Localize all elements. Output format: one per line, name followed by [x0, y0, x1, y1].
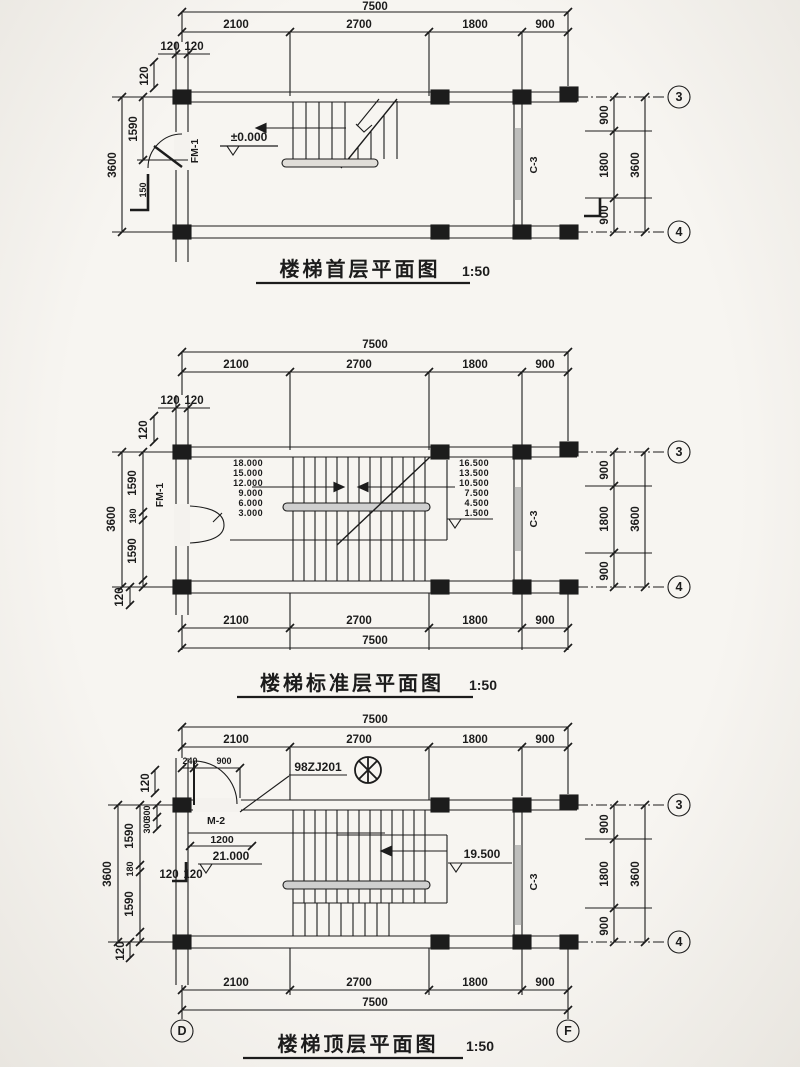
dim-seg: 1800 [462, 19, 488, 31]
stair-curb [282, 159, 378, 167]
dim-seg: 2700 [346, 615, 372, 627]
level-label: 15.000 [233, 468, 263, 478]
dim-180: 180 [128, 508, 138, 523]
dim-r1800: 1800 [599, 152, 611, 178]
first-floor-plan: 7500 2100 2700 1800 900 120 120 120 1590… [107, 1, 690, 283]
level-label: 10.500 [459, 478, 489, 488]
dim-seg: 900 [535, 977, 554, 989]
dim-seg: 900 [535, 19, 554, 31]
drawing-sheet: 7500 2100 2700 1800 900 120 120 120 1590… [0, 0, 800, 1067]
dim-seg: 2700 [346, 977, 372, 989]
dim-seg: 2100 [223, 977, 249, 989]
dim-seg: 2100 [223, 19, 249, 31]
dim-1200: 1200 [210, 834, 234, 846]
dim-r1800: 1800 [599, 506, 611, 532]
dim-r3600: 3600 [630, 861, 642, 887]
level-label: 9.000 [238, 488, 263, 498]
break-line [341, 99, 397, 168]
first-floor-texts: 7500 2100 2700 1800 900 120 120 120 1590… [107, 1, 683, 281]
dim-total-top: 7500 [362, 1, 388, 13]
dim-240: 240 [182, 756, 197, 766]
stair-flights [283, 810, 447, 936]
grid-bubble-d-label: D [177, 1024, 186, 1038]
dim-v120: 120 [138, 420, 150, 439]
standard-floor-plan: 7500 2100 2700 1800 900 120 120 120 1590… [106, 339, 690, 697]
dim-120-bottom: 120 [114, 587, 126, 606]
dim-seg: 1800 [462, 734, 488, 746]
dim-300: 300 [142, 805, 152, 820]
dim-seg: 2700 [346, 734, 372, 746]
elevation-marker [449, 519, 461, 528]
dim-900: 900 [216, 756, 231, 766]
dim-r900: 900 [599, 814, 611, 833]
dim-wall-120: 120 [184, 395, 203, 407]
drawing-title: 楼梯标准层平面图 [260, 671, 444, 695]
level-label: 18.000 [233, 458, 263, 468]
dim-1590: 1590 [124, 891, 136, 917]
dim-r900: 900 [599, 205, 611, 224]
dim-1590: 1590 [124, 823, 136, 849]
level-label: 16.500 [459, 458, 489, 468]
grid-bubble-3-label: 3 [676, 90, 683, 104]
top-floor-plan: 7500 2100 2700 1800 900 240 900 M-2 98ZJ… [102, 714, 690, 1058]
dim-3600: 3600 [106, 506, 118, 532]
door-fm1 [190, 506, 224, 543]
window-c3 [514, 102, 522, 226]
dim-r3600: 3600 [630, 506, 642, 532]
dim-r900: 900 [599, 460, 611, 479]
dim-seg: 2100 [223, 359, 249, 371]
level-label: 3.000 [238, 508, 263, 518]
level-label: 4.500 [464, 498, 489, 508]
elevation-marker [450, 863, 462, 872]
handrail [283, 503, 430, 511]
grid-bubble-f-label: F [564, 1024, 572, 1038]
dim-seg: 1800 [462, 615, 488, 627]
drawing-scale: 1:50 [469, 677, 497, 693]
grid-bubble-3-label: 3 [676, 798, 683, 812]
dim-1590: 1590 [128, 116, 140, 142]
window-c3 [514, 457, 522, 581]
door-label: M-2 [207, 815, 225, 827]
dim-seg: 1800 [462, 359, 488, 371]
window-label: C-3 [528, 156, 540, 173]
detail-index-symbol [355, 757, 381, 783]
dim-seg: 2700 [346, 359, 372, 371]
level-label: 13.500 [459, 468, 489, 478]
dim-seg: 2100 [223, 615, 249, 627]
dim-3600: 3600 [107, 152, 119, 178]
dim-1590: 1590 [127, 538, 139, 564]
dim-wall-120: 120 [184, 41, 203, 53]
dim-seg: 900 [535, 359, 554, 371]
dim-r3600: 3600 [630, 152, 642, 178]
dim-v120: 120 [139, 66, 151, 85]
dim-total-bottom: 7500 [362, 635, 388, 647]
elevation-marker [227, 146, 239, 155]
handrail [283, 881, 430, 889]
elevation-label: 21.000 [213, 849, 250, 863]
top-floor-linework [108, 723, 690, 1058]
dim-wall-120: 120 [160, 41, 179, 53]
door-label: FM-1 [189, 139, 201, 164]
dim-seg: 2100 [223, 734, 249, 746]
drawing-title: 楼梯顶层平面图 [278, 1032, 439, 1056]
dim-1590: 1590 [127, 470, 139, 496]
grid-bubble-3-label: 3 [676, 445, 683, 459]
drawing-scale: 1:50 [462, 263, 490, 279]
dim-r900: 900 [599, 561, 611, 580]
elevation-label: ±0.000 [231, 130, 268, 144]
up-arrow-chevron [356, 124, 372, 132]
dim-seg: 1800 [462, 977, 488, 989]
window-c3 [514, 810, 522, 936]
dim-wall-120: 120 [183, 869, 202, 881]
dim-120-bottom: 120 [115, 941, 127, 960]
window-label: C-3 [528, 510, 540, 527]
dim-150: 150 [138, 182, 148, 197]
detail-ref-label: 98ZJ201 [294, 760, 342, 774]
dim-r900: 900 [599, 105, 611, 124]
dim-180: 180 [125, 861, 135, 876]
standard-floor-texts: 7500 2100 2700 1800 900 120 120 120 1590… [106, 339, 683, 695]
dim-3600: 3600 [102, 861, 114, 887]
grid-bubble-4-label: 4 [676, 225, 683, 239]
door-label: FM-1 [154, 483, 166, 508]
stair-flights [230, 457, 455, 581]
dim-total-top: 7500 [362, 339, 388, 351]
dim-total-bottom: 7500 [362, 997, 388, 1009]
dim-wall-120: 120 [160, 395, 179, 407]
dim-300: 300 [142, 818, 152, 833]
level-label: 1.500 [464, 508, 489, 518]
break-line [337, 457, 430, 545]
grid-bubble-4-label: 4 [676, 935, 683, 949]
dim-r1800: 1800 [599, 861, 611, 887]
elevation-label: 19.500 [464, 847, 501, 861]
stair-flight [256, 99, 397, 168]
drawing-title: 楼梯首层平面图 [280, 257, 441, 281]
dim-v120: 120 [140, 773, 152, 792]
level-label: 7.500 [464, 488, 489, 498]
level-label: 6.000 [238, 498, 263, 508]
level-label: 12.000 [233, 478, 263, 488]
dim-seg: 900 [535, 734, 554, 746]
window-label: C-3 [528, 873, 540, 890]
dim-wall-120: 120 [159, 869, 178, 881]
dim-seg: 2700 [346, 19, 372, 31]
dim-seg: 900 [535, 615, 554, 627]
drawing-scale: 1:50 [466, 1038, 494, 1054]
grid-bubble-4-label: 4 [676, 580, 683, 594]
dim-total-top: 7500 [362, 714, 388, 726]
section-cut-mark-right [584, 198, 600, 216]
dim-r900: 900 [599, 916, 611, 935]
